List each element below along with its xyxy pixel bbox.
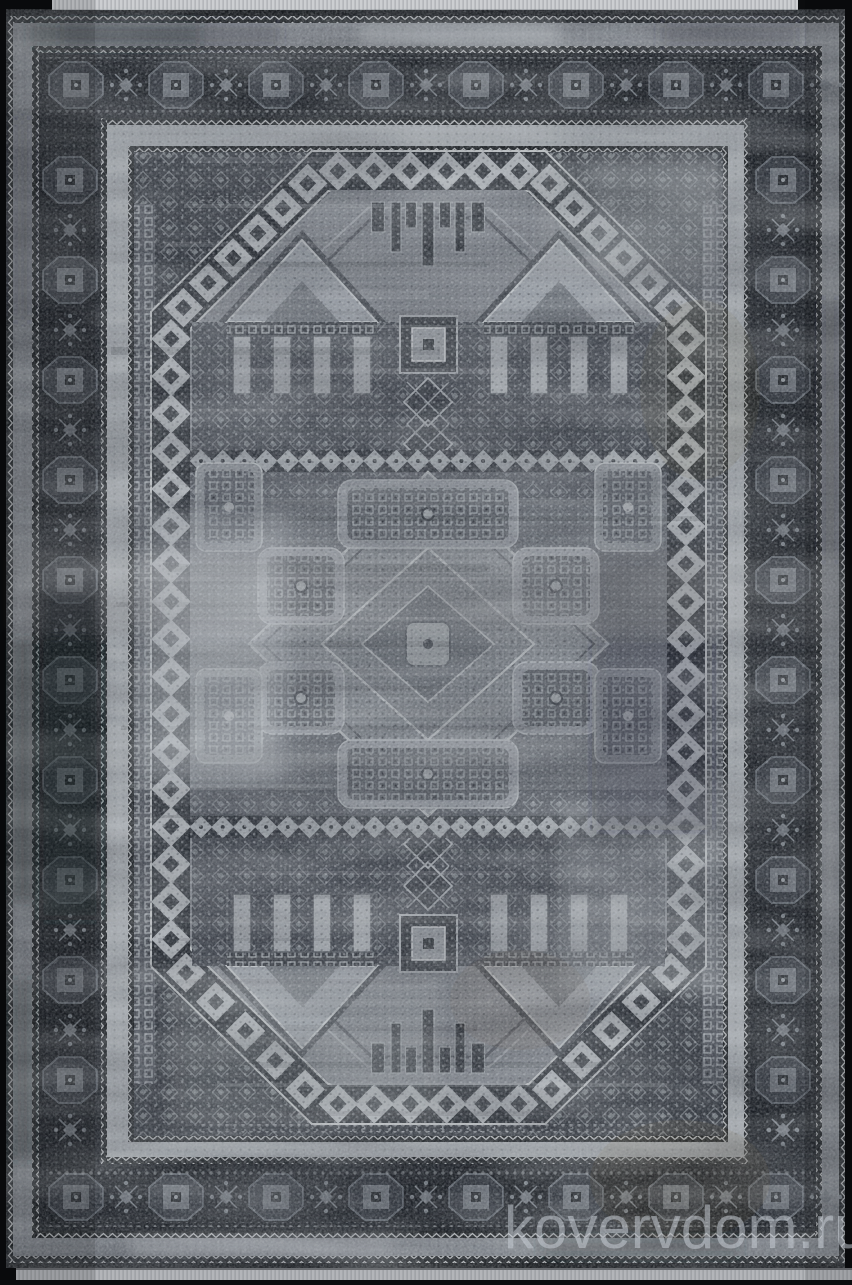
svg-text:kovervdom.ru: kovervdom.ru <box>504 1194 852 1261</box>
